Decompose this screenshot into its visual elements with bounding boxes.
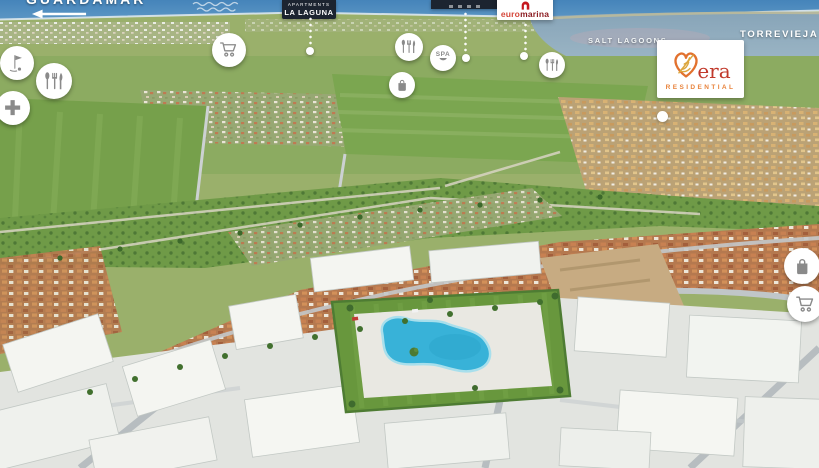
restaurant-icon xyxy=(43,70,66,93)
spa-marker: SPA xyxy=(430,45,456,71)
callout-dotted-line xyxy=(464,11,467,53)
lotus-icon xyxy=(436,58,450,66)
shopping-cart-icon xyxy=(218,39,239,60)
cropped-badge xyxy=(431,0,497,9)
callout-endpoint-dot xyxy=(520,52,528,60)
callout-dotted-line xyxy=(309,16,312,46)
vera-residential-logo: era RESIDENTIAL xyxy=(657,40,744,98)
shopping-bag-icon xyxy=(791,255,814,278)
golf-flag-marker xyxy=(0,46,34,80)
restaurant-marker xyxy=(36,63,72,99)
euromarina-logo: euromarina xyxy=(497,0,553,20)
salt-lagoons-label: SALT LAGOONS xyxy=(588,36,667,45)
shopping-bag-marker xyxy=(784,248,819,284)
shopping-bag-marker xyxy=(389,72,415,98)
direction-label-torrevieja: TORREVIEJA xyxy=(740,25,819,43)
shopping-bag-icon xyxy=(394,77,410,93)
waves-icon xyxy=(192,1,244,13)
medical-cross-icon xyxy=(2,97,23,118)
restaurant-icon xyxy=(400,38,418,56)
direction-label-guardamar: GUARDAMAR xyxy=(26,0,146,19)
golf-flag-icon xyxy=(6,52,27,73)
guardamar-text: GUARDAMAR xyxy=(26,0,146,7)
restaurant-icon xyxy=(544,57,560,73)
callout-endpoint-dot xyxy=(462,54,470,62)
aerial-map: GUARDAMAR APARTMENTS LA LAGUNA euromarin… xyxy=(0,0,819,468)
shopping-cart-icon xyxy=(794,293,817,316)
callout-dotted-line xyxy=(524,22,527,51)
la-laguna-badge-line1: APARTMENTS xyxy=(282,2,336,7)
left-arrow-icon xyxy=(30,9,88,19)
vera-wordmark: era xyxy=(697,62,730,80)
callout-endpoint-dot xyxy=(657,111,668,122)
vera-subtitle: RESIDENTIAL xyxy=(666,84,736,91)
restaurant-marker xyxy=(539,52,565,78)
restaurant-marker xyxy=(395,33,423,61)
torrevieja-text: TORREVIEJA xyxy=(740,29,819,40)
shopping-cart-marker xyxy=(787,286,819,322)
shopping-cart-marker xyxy=(212,33,246,67)
euromarina-wordmark: euromarina xyxy=(501,10,549,19)
callout-endpoint-dot xyxy=(306,47,314,55)
